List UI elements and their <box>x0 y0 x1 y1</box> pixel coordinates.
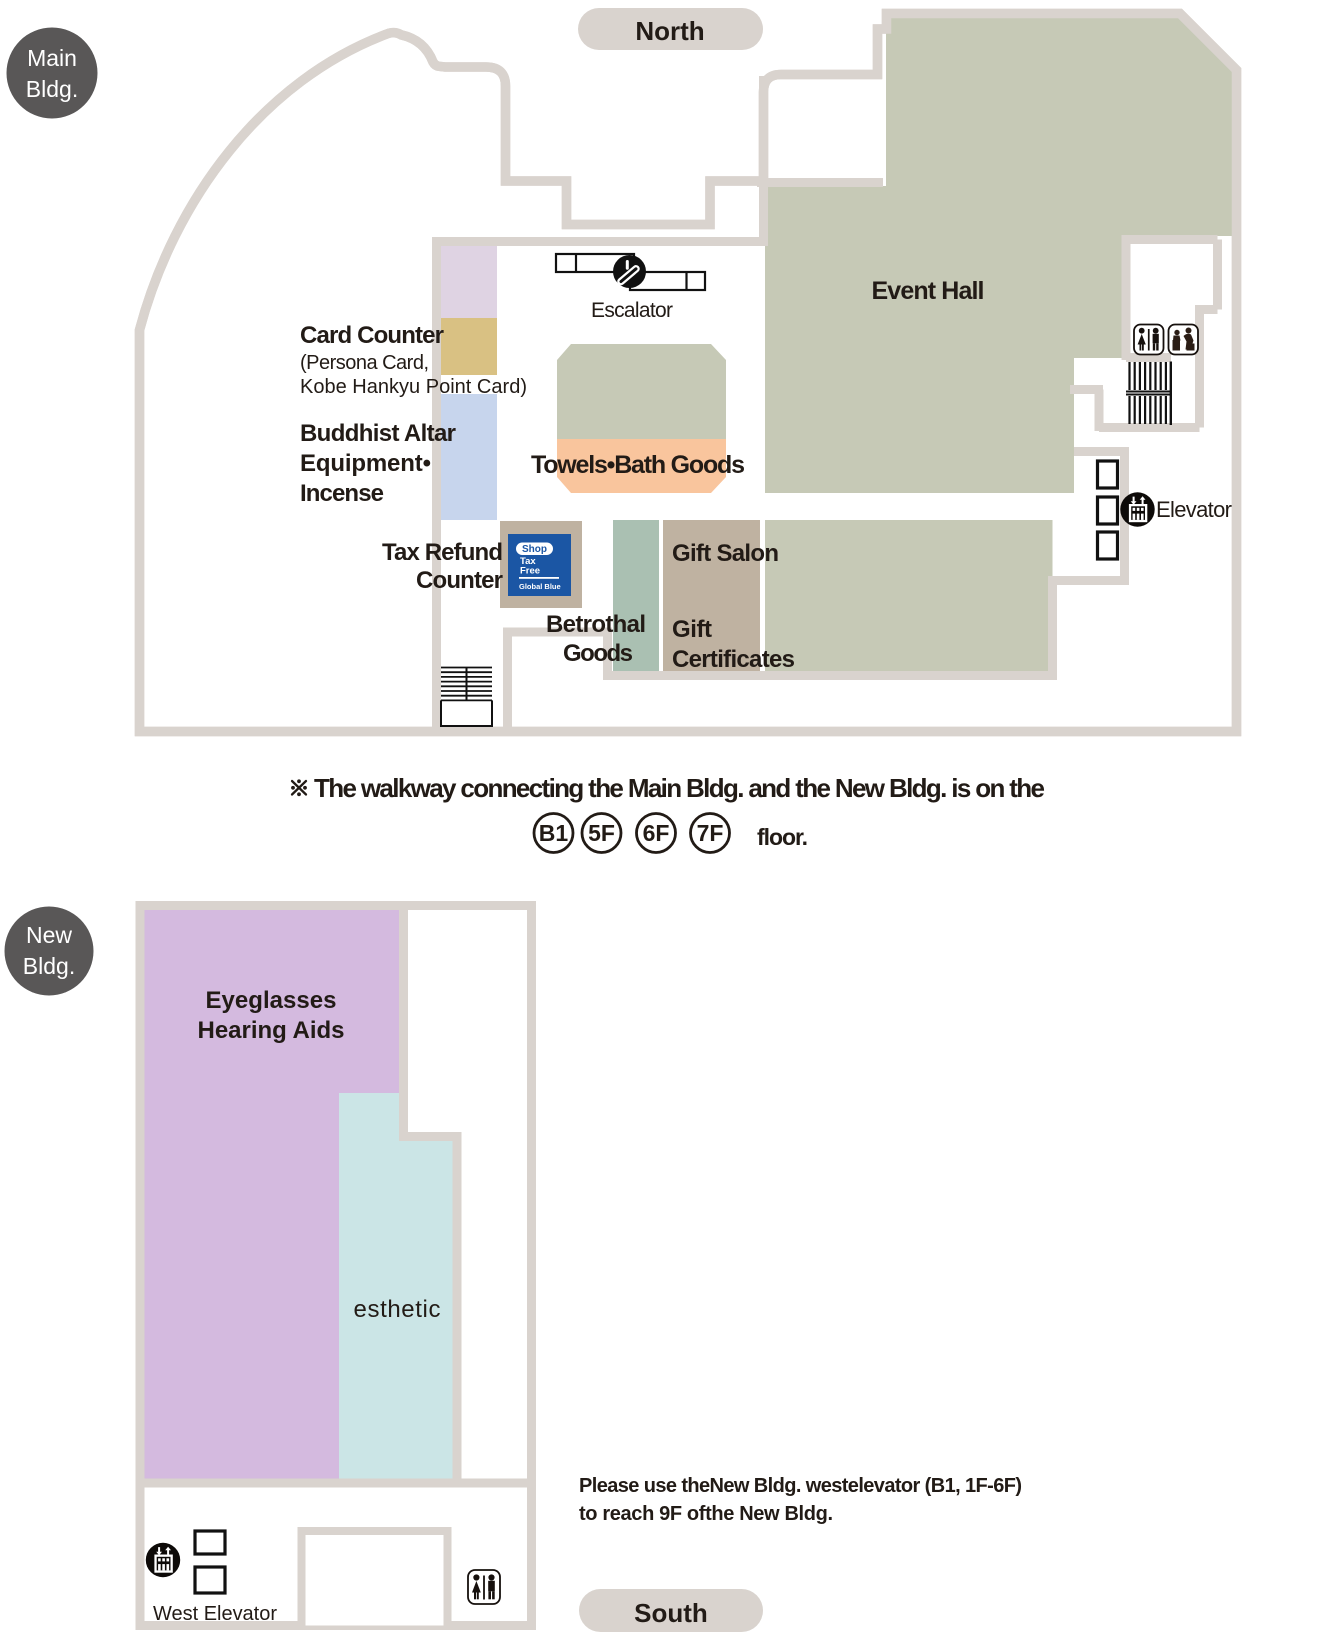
svg-text:Gift Salon: Gift Salon <box>672 540 779 567</box>
svg-text:Bldg.: Bldg. <box>23 953 75 979</box>
svg-text:Tax Refund: Tax Refund <box>382 539 503 566</box>
svg-text:Certificates: Certificates <box>672 646 795 673</box>
svg-text:West Elevator: West Elevator <box>153 1603 277 1625</box>
svg-text:Please use theNew Bldg. westel: Please use theNew Bldg. westelevator (B1… <box>579 1475 1022 1497</box>
svg-text:South: South <box>634 1598 708 1628</box>
svg-text:7F: 7F <box>697 820 724 846</box>
svg-text:Event Hall: Event Hall <box>872 277 985 305</box>
svg-text:Shop: Shop <box>522 544 547 555</box>
svg-text:Towels•Bath Goods: Towels•Bath Goods <box>531 451 745 479</box>
svg-text:Goods: Goods <box>563 640 633 667</box>
svg-text:Eyeglasses: Eyeglasses <box>206 987 337 1014</box>
svg-text:Equipment•: Equipment• <box>300 450 431 477</box>
svg-text:Hearing Aids: Hearing Aids <box>198 1017 345 1044</box>
svg-text:to reach 9F ofthe New Bldg.: to reach 9F ofthe New Bldg. <box>579 1503 833 1525</box>
svg-text:Free: Free <box>520 566 540 577</box>
svg-text:Gift: Gift <box>672 616 712 643</box>
svg-text:B1: B1 <box>539 820 569 846</box>
svg-text:Buddhist Altar: Buddhist Altar <box>300 420 456 447</box>
svg-text:(Persona Card,: (Persona Card, <box>300 352 429 374</box>
svg-text:Incense: Incense <box>300 480 384 507</box>
svg-text:esthetic: esthetic <box>354 1296 441 1323</box>
svg-text:Escalator: Escalator <box>591 299 673 322</box>
svg-text:Main: Main <box>27 45 77 71</box>
svg-text:Global Blue: Global Blue <box>519 582 561 591</box>
svg-text:6F: 6F <box>643 820 670 846</box>
svg-text:Bldg.: Bldg. <box>26 76 78 102</box>
svg-text:New: New <box>26 922 72 948</box>
svg-text:Kobe Hankyu Point Card): Kobe Hankyu Point Card) <box>300 376 527 398</box>
svg-text:North: North <box>635 16 704 46</box>
svg-text:Card Counter: Card Counter <box>300 322 444 349</box>
svg-text:Betrothal: Betrothal <box>546 611 646 638</box>
svg-text:Elevator: Elevator <box>1156 497 1232 522</box>
svg-text:Counter: Counter <box>416 567 503 594</box>
svg-text:5F: 5F <box>588 820 615 846</box>
svg-text:floor.: floor. <box>757 824 808 850</box>
svg-text:The walkway connecting the Mai: The walkway connecting the Main Bldg. an… <box>314 773 1045 803</box>
